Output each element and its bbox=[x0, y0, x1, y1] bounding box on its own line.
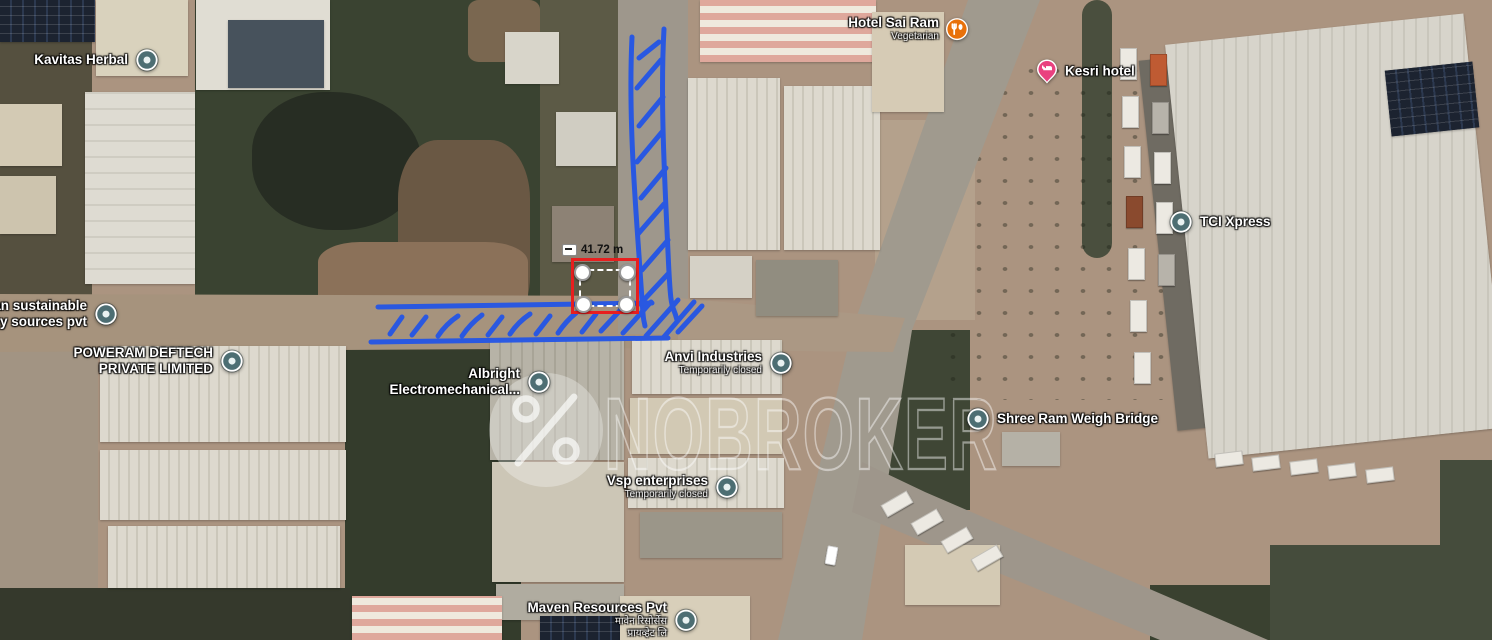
label-line: Vegetarian bbox=[891, 31, 939, 43]
map-label-urban-sustainable-energy[interactable]: Urban sustainableenergy sources pvt bbox=[0, 298, 119, 330]
map-label-shree-ram-weigh-bridge[interactable]: Shree Ram Weigh Bridge bbox=[965, 406, 1158, 432]
label-line: Hotel Sai Ram bbox=[848, 15, 939, 31]
building bbox=[505, 32, 559, 84]
restaurant-icon[interactable] bbox=[945, 17, 969, 41]
map-label-text: Shree Ram Weigh Bridge bbox=[997, 411, 1158, 427]
building bbox=[640, 512, 782, 558]
poi-icon[interactable] bbox=[219, 348, 245, 374]
measurement-label: 41.72 m bbox=[562, 244, 623, 256]
label-line: Temporarily closed bbox=[679, 365, 762, 377]
building bbox=[556, 112, 616, 166]
plot-handle[interactable] bbox=[618, 296, 635, 313]
label-line: Anvi Industries bbox=[664, 349, 762, 365]
building bbox=[784, 86, 880, 250]
label-line: Shree Ram Weigh Bridge bbox=[997, 411, 1158, 427]
building bbox=[492, 462, 624, 582]
map-label-text: AlbrightElectromechanical... bbox=[389, 366, 520, 398]
map-label-hotel-sai-ram[interactable]: Hotel Sai RamVegetarian bbox=[848, 15, 969, 43]
map-label-poweram-deftech[interactable]: POWERAM DEFTECHPRIVATE LIMITED bbox=[74, 345, 246, 377]
map-label-kavitas-herbal[interactable]: Kavitas Herbal bbox=[34, 47, 160, 73]
poi-icon[interactable] bbox=[93, 301, 119, 327]
label-line: Maven Resources Pvt bbox=[527, 600, 667, 616]
map-label-vsp-enterprises[interactable]: Vsp enterprisesTemporarily closed bbox=[607, 473, 740, 501]
poi-icon[interactable] bbox=[965, 406, 991, 432]
weighbridge bbox=[1002, 432, 1060, 466]
solar-roof bbox=[0, 0, 95, 42]
plot-handle[interactable] bbox=[619, 264, 636, 281]
poi-icon[interactable] bbox=[526, 369, 552, 395]
satellite-map[interactable]: 41.72 m NOBROKER Kavitas HerbalHotel Sai… bbox=[0, 0, 1492, 640]
label-line: PRIVATE LIMITED bbox=[99, 361, 213, 377]
building bbox=[630, 398, 782, 454]
poi-icon[interactable] bbox=[714, 474, 740, 500]
label-line: Kavitas Herbal bbox=[34, 52, 128, 68]
label-line: Vsp enterprises bbox=[607, 473, 708, 489]
building bbox=[0, 176, 56, 234]
label-line: POWERAM DEFTECH bbox=[74, 345, 214, 361]
map-label-kesri-hotel[interactable]: Kesri hotel bbox=[1035, 58, 1135, 85]
label-line: प्रायव्हेट लि bbox=[628, 628, 667, 640]
building bbox=[85, 92, 195, 284]
building bbox=[228, 20, 324, 88]
label-line: मावेन रिसोर्सेस bbox=[615, 616, 667, 628]
poi-icon[interactable] bbox=[673, 607, 699, 633]
plot-handle[interactable] bbox=[574, 264, 591, 281]
label-line: Temporarily closed bbox=[625, 489, 708, 501]
label-line: Urban sustainable bbox=[0, 298, 87, 314]
building bbox=[756, 260, 838, 316]
plot-measurement-overlay[interactable]: 41.72 m bbox=[571, 258, 639, 314]
map-label-text: Urban sustainableenergy sources pvt bbox=[0, 298, 87, 330]
poi-icon[interactable] bbox=[1168, 209, 1194, 235]
label-line: TCI Xpress bbox=[1200, 214, 1271, 230]
map-label-text: Kavitas Herbal bbox=[34, 52, 128, 68]
poi-icon[interactable] bbox=[768, 350, 794, 376]
map-label-anvi-industries[interactable]: Anvi IndustriesTemporarily closed bbox=[664, 349, 794, 377]
building bbox=[100, 450, 346, 520]
map-label-text: Maven Resources Pvtमावेन रिसोर्सेसप्रायव… bbox=[527, 600, 667, 640]
label-line: energy sources pvt bbox=[0, 314, 87, 330]
building bbox=[688, 78, 780, 250]
label-line: Electromechanical... bbox=[389, 382, 520, 398]
map-label-text: Vsp enterprisesTemporarily closed bbox=[607, 473, 708, 501]
map-label-text: TCI Xpress bbox=[1200, 214, 1271, 230]
label-line: Kesri hotel bbox=[1065, 63, 1135, 79]
building bbox=[108, 526, 340, 588]
measurement-value: 41.72 m bbox=[581, 244, 623, 256]
building bbox=[690, 256, 752, 298]
map-label-text: Kesri hotel bbox=[1065, 63, 1135, 79]
building bbox=[490, 340, 624, 460]
map-label-text: POWERAM DEFTECHPRIVATE LIMITED bbox=[74, 345, 214, 377]
solar-roof bbox=[1385, 62, 1479, 137]
map-label-maven-resources[interactable]: Maven Resources Pvtमावेन रिसोर्सेसप्रायव… bbox=[527, 600, 699, 640]
hotel-pin-icon[interactable] bbox=[1035, 58, 1059, 85]
map-label-text: Hotel Sai RamVegetarian bbox=[848, 15, 939, 43]
map-label-tci-xpress[interactable]: TCI Xpress bbox=[1168, 209, 1271, 235]
measure-chip-icon bbox=[562, 244, 577, 256]
poi-icon[interactable] bbox=[134, 47, 160, 73]
map-label-text: Anvi IndustriesTemporarily closed bbox=[664, 349, 762, 377]
plot-handle[interactable] bbox=[575, 296, 592, 313]
building bbox=[352, 596, 502, 640]
map-label-albright-electromechanical[interactable]: AlbrightElectromechanical... bbox=[389, 366, 552, 398]
building bbox=[0, 104, 62, 166]
label-line: Albright bbox=[468, 366, 520, 382]
